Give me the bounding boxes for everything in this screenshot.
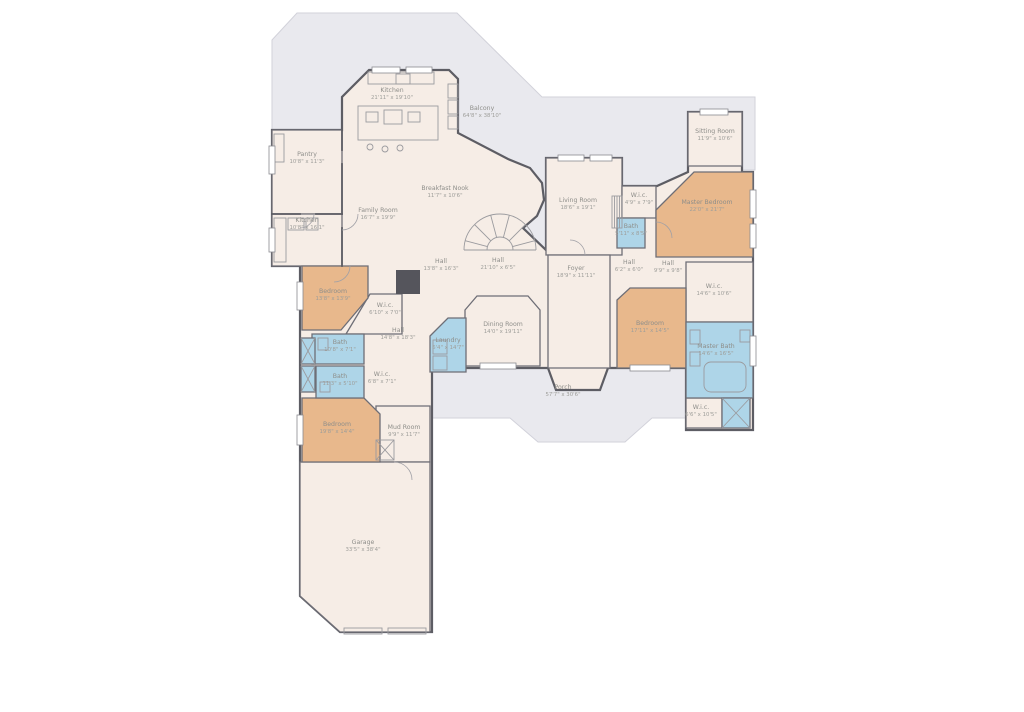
label-bath-small-name: Bath xyxy=(624,223,638,230)
label-bath2-name: Bath xyxy=(333,373,347,380)
label-hall-1-name: Hall xyxy=(435,258,447,265)
label-laundry-name: Laundry xyxy=(435,337,461,344)
fireplace xyxy=(396,270,420,294)
label-wic-right-name: W.i.c. xyxy=(706,283,722,290)
label-family-room-name: Family Room xyxy=(358,207,398,214)
label-bath1-dims: 10'8" x 7'1" xyxy=(324,347,356,353)
window-bedroom-right xyxy=(630,365,670,371)
label-living-room-name: Living Room xyxy=(559,197,597,204)
label-family-room-dims: 16'7" x 19'9" xyxy=(360,215,395,221)
label-hall-5-name: Hall xyxy=(392,327,404,334)
label-foyer-dims: 18'9" x 11'11" xyxy=(557,273,596,279)
label-foyer-name: Foyer xyxy=(567,265,585,272)
label-master-bedroom-name: Master Bedroom xyxy=(681,199,732,206)
label-kitchen-small-name: Kitchen xyxy=(295,217,318,224)
label-garage-dims: 33'5" x 38'4" xyxy=(345,547,380,553)
label-mud-room-name: Mud Room xyxy=(388,424,421,431)
label-hall-4-name: Hall xyxy=(662,260,674,267)
label-kitchen-top-name: Kitchen xyxy=(380,87,403,94)
floor-plan-page: Balcony64'8" x 38'10"Kitchen21'11" x 19'… xyxy=(0,0,1024,712)
label-porch-name: Porch xyxy=(554,384,571,391)
label-bedroom-mid-name: Bedroom xyxy=(319,288,347,295)
window-master-1 xyxy=(750,190,756,218)
label-bedroom-bottom-dims: 19'8" x 14'4" xyxy=(319,429,354,435)
label-kitchen-top-dims: 21'11" x 19'10" xyxy=(371,95,413,101)
window-master-2 xyxy=(750,224,756,248)
label-bedroom-mid-dims: 13'8" x 13'9" xyxy=(315,296,350,302)
window-bedroom-bottom xyxy=(297,415,303,445)
label-master-bath-name: Master Bath xyxy=(697,343,735,350)
label-wic-bottom-dims: 6'6" x 10'5" xyxy=(685,412,717,418)
label-master-bath-dims: 14'6" x 16'5" xyxy=(698,351,733,357)
window-bedroom-mid xyxy=(297,282,303,310)
label-bedroom-right-name: Bedroom xyxy=(636,320,664,327)
label-hall-2-dims: 21'10" x 6'5" xyxy=(480,265,515,271)
window-living-1 xyxy=(558,155,584,161)
window-dining xyxy=(480,363,516,369)
window-kitchen-1 xyxy=(372,67,400,73)
label-dining-room-name: Dining Room xyxy=(483,321,523,328)
label-wic-small-name: W.i.c. xyxy=(374,371,390,378)
label-living-room-dims: 18'6" x 19'1" xyxy=(560,205,595,211)
label-hall-5-dims: 14'8" x 18'3" xyxy=(380,335,415,341)
label-wic-top-dims: 4'9" x 7'9" xyxy=(625,200,653,206)
label-hall-2-name: Hall xyxy=(492,257,504,264)
window-pantry xyxy=(269,146,275,174)
label-kitchen-small-dims: 10'8" x 16'1" xyxy=(289,225,324,231)
label-hall-1-dims: 13'8" x 16'3" xyxy=(423,266,458,272)
label-hall-3-dims: 6'2" x 6'0" xyxy=(615,267,643,273)
label-bedroom-bottom-name: Bedroom xyxy=(323,421,351,428)
floor-plan-svg: Balcony64'8" x 38'10"Kitchen21'11" x 19'… xyxy=(0,0,1024,712)
label-breakfast-nook-name: Breakfast Nook xyxy=(421,185,469,192)
label-sitting-room-dims: 11'9" x 10'6" xyxy=(697,136,732,142)
window-kitchen-2 xyxy=(406,67,432,73)
window-master-bath xyxy=(750,336,756,366)
label-laundry-dims: 6'4" x 14'7" xyxy=(432,345,464,351)
label-wic-bottom-name: W.i.c. xyxy=(693,404,709,411)
window-kitchen-small xyxy=(269,228,275,252)
label-garage-name: Garage xyxy=(352,539,375,546)
label-porch-dims: 57'7" x 30'6" xyxy=(545,392,580,398)
label-breakfast-nook-dims: 11'7" x 10'6" xyxy=(427,193,462,199)
label-bath1-name: Bath xyxy=(333,339,347,346)
label-mud-room-dims: 9'9" x 11'7" xyxy=(388,432,420,438)
label-hall-3-name: Hall xyxy=(623,259,635,266)
label-sitting-room-name: Sitting Room xyxy=(695,128,735,135)
label-dining-room-dims: 14'0" x 19'11" xyxy=(484,329,523,335)
label-bath2-dims: 11'3" x 5'10" xyxy=(322,381,357,387)
label-master-bedroom-dims: 22'0" x 21'7" xyxy=(689,207,724,213)
label-bath-small-dims: 5'11" x 8'5" xyxy=(615,231,647,237)
label-pantry-name: Pantry xyxy=(297,151,317,158)
label-pantry-dims: 10'8" x 11'3" xyxy=(289,159,324,165)
label-wic-right-dims: 14'6" x 10'6" xyxy=(696,291,731,297)
room-pantry xyxy=(272,130,342,214)
room-master-bath xyxy=(686,322,753,398)
label-balcony-dims: 64'8" x 38'10" xyxy=(463,113,502,119)
window-living-2 xyxy=(590,155,612,161)
label-wic-mid-dims: 6'10" x 7'0" xyxy=(369,310,401,316)
window-sitting xyxy=(700,109,728,115)
label-wic-mid-name: W.i.c. xyxy=(377,302,393,309)
label-wic-small-dims: 6'8" x 7'1" xyxy=(368,379,396,385)
label-hall-4-dims: 9'9" x 9'8" xyxy=(654,268,682,274)
label-bedroom-right-dims: 17'11" x 14'5" xyxy=(631,328,670,334)
label-wic-top-name: W.i.c. xyxy=(631,192,647,199)
label-balcony-name: Balcony xyxy=(470,105,495,112)
